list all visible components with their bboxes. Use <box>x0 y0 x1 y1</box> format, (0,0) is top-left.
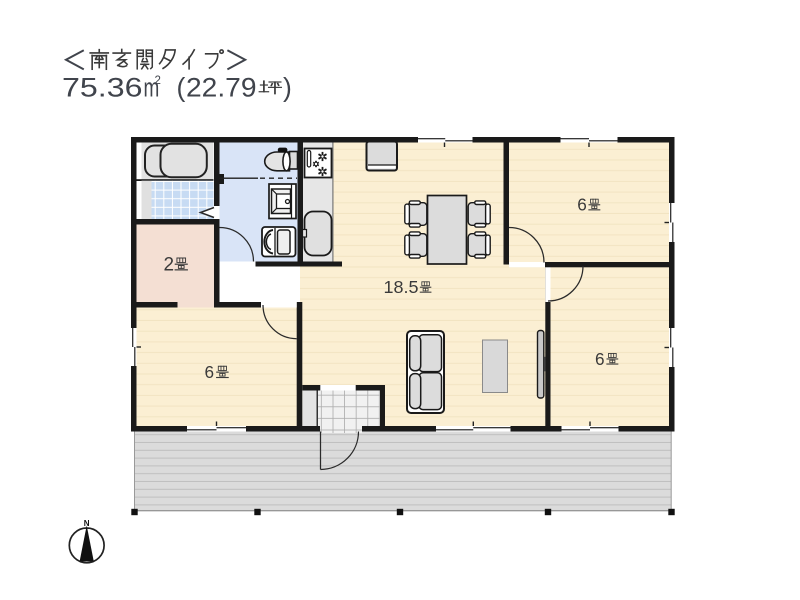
svg-text:22.79: 22.79 <box>186 72 257 102</box>
svg-text:2: 2 <box>164 255 175 276</box>
svg-text:(: ( <box>177 72 186 102</box>
svg-text:18.5: 18.5 <box>384 277 419 297</box>
svg-text:6: 6 <box>595 349 605 369</box>
svg-text:N: N <box>84 519 90 528</box>
svg-text:2: 2 <box>155 75 161 87</box>
svg-text:6: 6 <box>577 195 587 215</box>
svg-text:6: 6 <box>205 362 215 382</box>
svg-text:75.36: 75.36 <box>62 72 143 102</box>
svg-text:): ) <box>283 72 292 102</box>
